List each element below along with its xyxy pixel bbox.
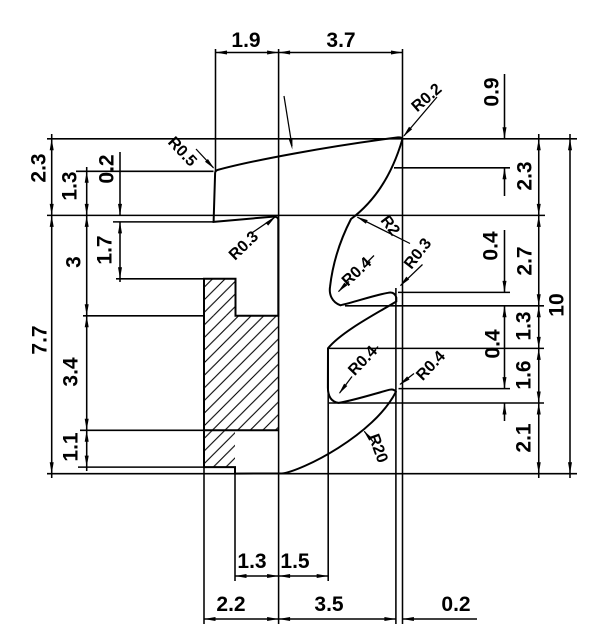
svg-text:1.6: 1.6 [513, 360, 536, 389]
svg-text:1.7: 1.7 [94, 235, 117, 264]
svg-text:0.2: 0.2 [96, 154, 119, 183]
svg-text:0.9: 0.9 [481, 77, 504, 106]
svg-text:7.7: 7.7 [29, 325, 52, 354]
svg-text:2.3: 2.3 [28, 153, 51, 182]
svg-text:2.2: 2.2 [216, 593, 245, 616]
svg-text:1.1: 1.1 [60, 432, 83, 462]
svg-text:0.2: 0.2 [441, 593, 470, 616]
svg-text:3: 3 [63, 256, 86, 268]
svg-text:2.1: 2.1 [513, 423, 536, 453]
svg-text:2.3: 2.3 [514, 161, 537, 190]
svg-text:3.7: 3.7 [326, 29, 355, 52]
svg-text:1.9: 1.9 [231, 29, 260, 52]
svg-text:0.4: 0.4 [482, 329, 505, 359]
svg-text:3.5: 3.5 [314, 593, 344, 616]
svg-text:1.3: 1.3 [237, 550, 266, 573]
svg-text:3.4: 3.4 [60, 357, 83, 387]
svg-text:2.7: 2.7 [514, 246, 537, 275]
svg-text:1.3: 1.3 [59, 171, 82, 200]
svg-text:0.4: 0.4 [480, 231, 503, 261]
svg-text:1.5: 1.5 [280, 550, 310, 573]
svg-text:10: 10 [546, 293, 569, 316]
svg-text:1.3: 1.3 [513, 311, 536, 340]
